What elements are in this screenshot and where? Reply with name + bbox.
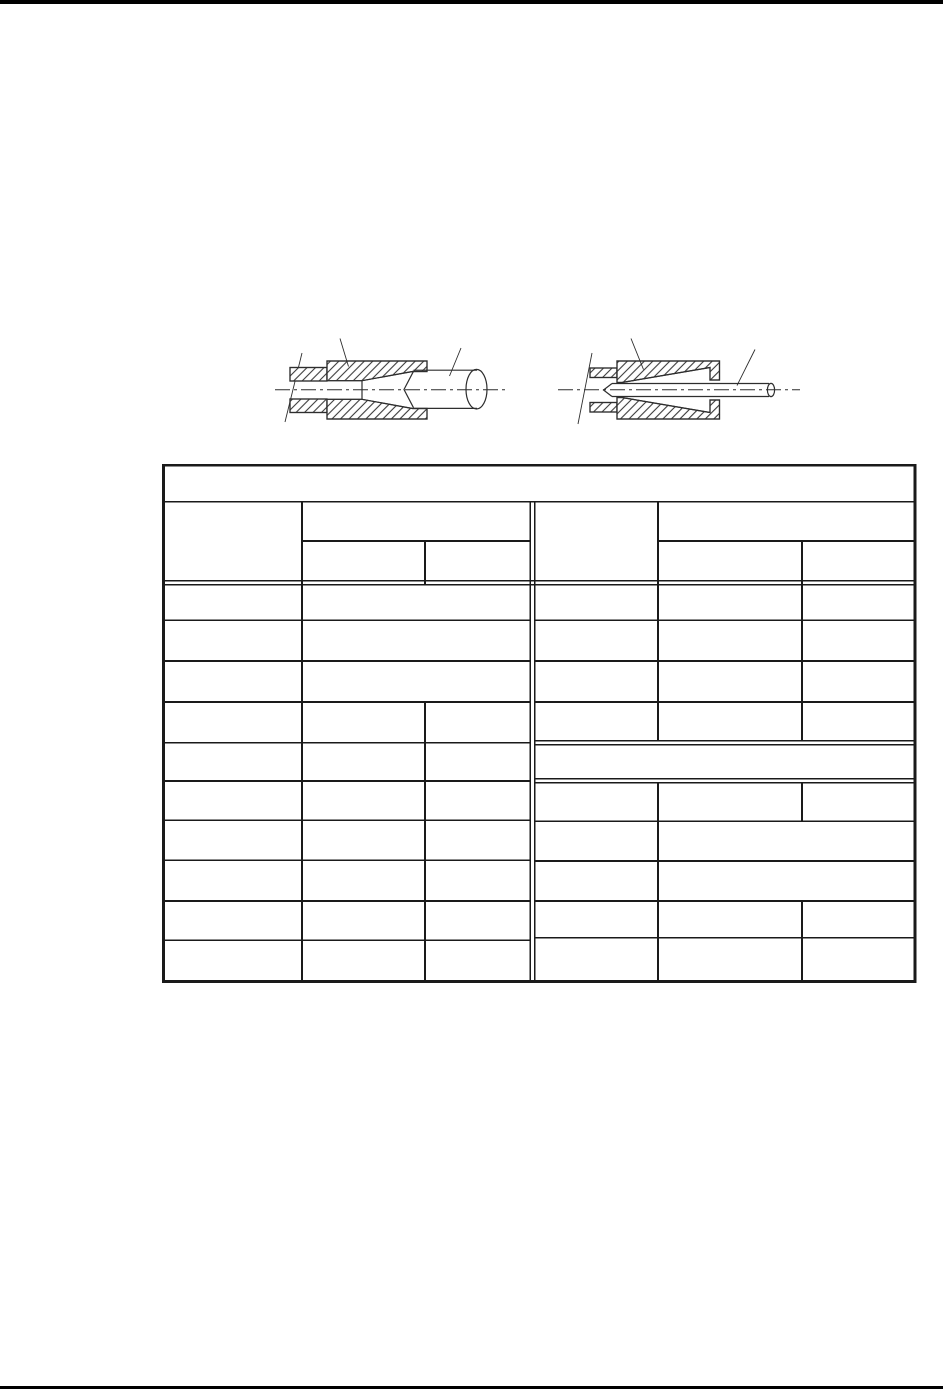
left-subtable-rows (163, 620, 530, 940)
spec-table-grid (163, 465, 915, 981)
right-subtable-rows (535, 620, 915, 938)
break-line (578, 353, 592, 424)
page-graphics (0, 0, 943, 1391)
table-title-cell (165, 467, 913, 499)
leader-to-cable (737, 350, 755, 386)
document-page (0, 0, 943, 1391)
page-bottom-rule (0, 1386, 943, 1389)
cable (404, 369, 487, 409)
figure-left-gland-section (275, 339, 505, 423)
leader-to-cable (450, 348, 462, 376)
column-dividers (302, 502, 802, 981)
figure-right-gland-section (558, 339, 800, 425)
